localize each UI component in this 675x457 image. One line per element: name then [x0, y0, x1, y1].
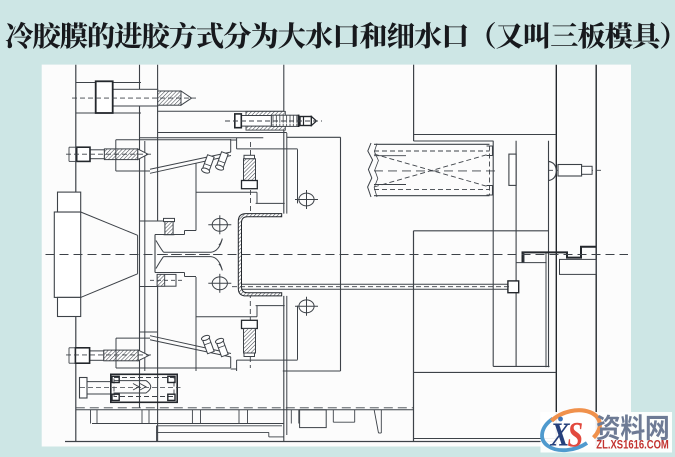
svg-text:ZL.XS1616.COM: ZL.XS1616.COM: [596, 438, 669, 452]
svg-text:S: S: [568, 414, 584, 454]
